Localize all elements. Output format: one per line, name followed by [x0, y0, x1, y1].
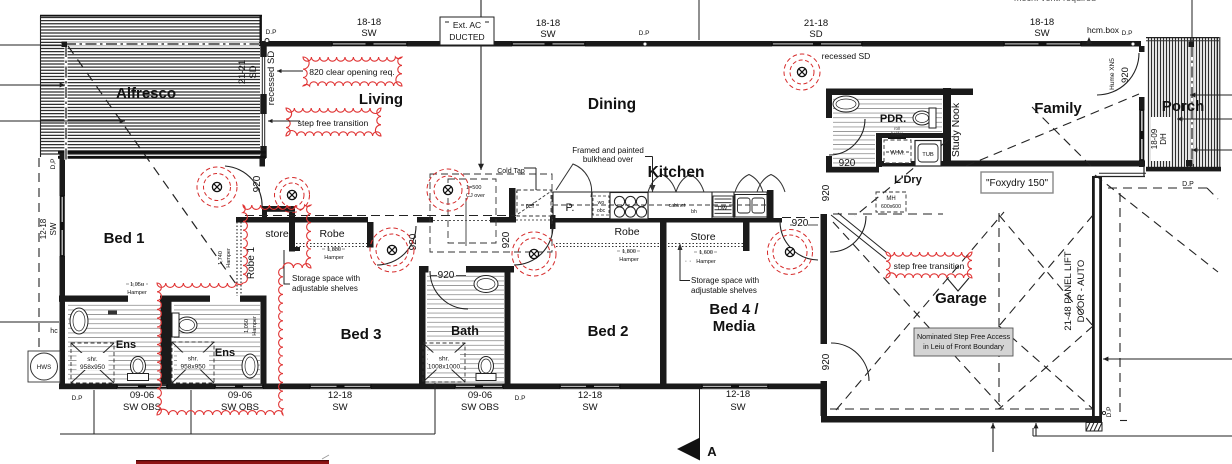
svg-text:1,740: 1,740: [218, 251, 224, 265]
svg-text:PDR.: PDR.: [880, 113, 906, 125]
svg-text:958x950: 958x950: [80, 364, 105, 371]
svg-text:SW: SW: [361, 28, 376, 39]
svg-text:920: 920: [821, 353, 832, 370]
svg-text:W.M.: W.M.: [890, 150, 905, 157]
svg-text:600x600: 600x600: [881, 204, 901, 210]
svg-text:1,05u: 1,05u: [130, 282, 144, 288]
svg-text:Media: Media: [713, 318, 756, 335]
svg-text:obc: obc: [597, 208, 606, 214]
svg-text:HWS: HWS: [37, 364, 51, 371]
svg-text:Ext. AC: Ext. AC: [453, 20, 481, 30]
svg-text:A: A: [707, 444, 717, 459]
svg-text:21-18: 21-18: [804, 18, 828, 29]
svg-text:step free transition: step free transition: [298, 118, 369, 128]
svg-text:L'Dry: L'Dry: [894, 174, 923, 186]
svg-text:Kitchen: Kitchen: [648, 164, 705, 181]
svg-text:DW: DW: [718, 206, 728, 212]
svg-text:DUCTED: DUCTED: [449, 32, 484, 42]
svg-text:D,P: D,P: [50, 159, 57, 170]
svg-text:in Leiu of Front Boundary: in Leiu of Front Boundary: [923, 342, 1004, 351]
svg-text:SW: SW: [540, 29, 555, 40]
svg-text:SW: SW: [582, 402, 597, 413]
svg-text:holder: holder: [891, 131, 904, 136]
svg-text:Robe: Robe: [614, 226, 639, 238]
svg-text:adjustable shelves: adjustable shelves: [292, 284, 358, 293]
svg-text:Framed and painted: Framed and painted: [572, 146, 644, 155]
svg-text:shr.: shr.: [439, 356, 450, 363]
svg-text:920: 920: [501, 231, 512, 248]
svg-text:shr.: shr.: [188, 356, 199, 363]
svg-text:12-18: 12-18: [726, 389, 750, 400]
svg-text:Hamper: Hamper: [696, 259, 716, 265]
svg-text:shr.: shr.: [87, 356, 98, 363]
svg-text:D.P: D.P: [639, 30, 650, 37]
svg-text:D.P: D.P: [515, 395, 526, 402]
svg-text:SW OBS: SW OBS: [123, 402, 161, 413]
svg-text:D.P: D.P: [1122, 30, 1133, 37]
svg-text:958x950: 958x950: [181, 364, 206, 371]
svg-text:920: 920: [252, 175, 263, 192]
svg-text:D.P: D.P: [1106, 407, 1113, 418]
svg-text:Alfresco: Alfresco: [116, 85, 176, 102]
svg-text:P.: P.: [566, 202, 575, 214]
svg-text:hcm.box: hcm.box: [1087, 25, 1120, 35]
svg-text:DOOR - AUTO: DOOR - AUTO: [1076, 260, 1087, 323]
svg-text:Bed 4 /: Bed 4 /: [709, 301, 759, 318]
svg-text:SW: SW: [730, 402, 745, 413]
svg-text:Hamper: Hamper: [127, 290, 147, 296]
svg-text:09-06: 09-06: [228, 390, 252, 401]
svg-text:Bed 1: Bed 1: [104, 230, 145, 247]
svg-text:Storage space with: Storage space with: [691, 276, 759, 285]
svg-text:DH: DH: [1159, 133, 1168, 145]
svg-text:TUB: TUB: [922, 152, 934, 158]
svg-text:SW: SW: [1034, 28, 1049, 39]
svg-text:920: 920: [821, 184, 832, 201]
svg-text:mech. vent. required: mech. vent. required: [1014, 0, 1096, 3]
svg-text:D.P: D.P: [266, 29, 277, 36]
svg-text:D.P: D.P: [72, 395, 83, 402]
svg-text:SW: SW: [332, 402, 347, 413]
svg-text:SW: SW: [49, 222, 58, 235]
svg-text:Living: Living: [359, 91, 403, 108]
svg-text:recessed SD: recessed SD: [266, 51, 277, 106]
svg-text:Dining: Dining: [588, 96, 636, 113]
svg-text:1=500: 1=500: [466, 185, 481, 191]
svg-text:hc: hc: [50, 328, 58, 335]
svg-text:18-18: 18-18: [1030, 17, 1054, 28]
svg-text:09-06: 09-06: [468, 390, 492, 401]
svg-text:SW OBS: SW OBS: [461, 402, 499, 413]
svg-text:12-18: 12-18: [578, 390, 602, 401]
svg-text:1,050: 1,050: [244, 319, 250, 333]
svg-text:Robe: Robe: [319, 228, 344, 240]
svg-text:1,800: 1,800: [622, 249, 636, 255]
svg-text:Bed 2: Bed 2: [588, 323, 629, 340]
svg-text:18-18: 18-18: [536, 18, 560, 29]
svg-text:920: 920: [792, 218, 809, 229]
svg-text:MH: MH: [886, 196, 895, 202]
svg-text:Hamper: Hamper: [619, 257, 639, 263]
svg-text:920: 920: [839, 158, 856, 169]
svg-text:Hamper: Hamper: [252, 316, 258, 336]
svg-text:1,880: 1,880: [327, 247, 341, 253]
svg-text:cabinet: cabinet: [669, 203, 686, 209]
svg-text:Store: Store: [690, 231, 715, 243]
svg-text:recessed SD: recessed SD: [822, 51, 871, 61]
svg-text:920: 920: [408, 233, 419, 250]
svg-text:adjustable shelves: adjustable shelves: [691, 286, 757, 295]
svg-text:Bed 3: Bed 3: [341, 326, 382, 343]
svg-text:Storage space with: Storage space with: [292, 274, 360, 283]
svg-text:Garage: Garage: [935, 290, 987, 307]
svg-text:Ens: Ens: [116, 339, 136, 351]
svg-text:09-06: 09-06: [130, 390, 154, 401]
svg-text:Nominated Step Free Access: Nominated Step Free Access: [917, 332, 1010, 341]
svg-text:SW OBS: SW OBS: [221, 402, 259, 413]
svg-text:Study Nook: Study Nook: [950, 102, 962, 157]
svg-text:· ·: · ·: [685, 258, 692, 265]
svg-text:D.P: D.P: [1182, 181, 1194, 188]
svg-text:21-48 PANEL LIFT: 21-48 PANEL LIFT: [1063, 251, 1074, 330]
svg-text:SD: SD: [248, 65, 259, 78]
svg-text:"Foxydry 150": "Foxydry 150": [986, 178, 1049, 189]
svg-text:18-18: 18-18: [357, 17, 381, 28]
svg-text:bulkhead over: bulkhead over: [583, 155, 634, 164]
svg-text:Cold Tap: Cold Tap: [497, 168, 525, 175]
svg-text:Ens: Ens: [215, 347, 235, 359]
svg-text:step free transition: step free transition: [894, 261, 965, 271]
svg-text:1,600: 1,600: [699, 250, 713, 256]
svg-text:store: store: [265, 228, 289, 240]
svg-text:Family: Family: [1034, 100, 1082, 117]
svg-text:18-09: 18-09: [1150, 128, 1159, 149]
svg-text:12-18: 12-18: [328, 390, 352, 401]
svg-text:12-18: 12-18: [39, 218, 48, 239]
svg-text:Hamper: Hamper: [226, 248, 232, 268]
svg-text:920: 920: [1120, 67, 1131, 83]
svg-text:920: 920: [438, 270, 455, 281]
svg-text:Hume XN5: Hume XN5: [1109, 58, 1116, 90]
svg-text:Porch: Porch: [1162, 98, 1205, 115]
svg-text:1008x1000: 1008x1000: [428, 364, 461, 371]
svg-text:Hamper: Hamper: [324, 255, 344, 261]
svg-text:Bath: Bath: [451, 324, 479, 338]
svg-text:21-21: 21-21: [237, 60, 248, 84]
svg-text:SD: SD: [809, 29, 822, 40]
svg-text:bh: bh: [691, 209, 697, 215]
svg-text:820 clear opening req.: 820 clear opening req.: [309, 67, 395, 77]
